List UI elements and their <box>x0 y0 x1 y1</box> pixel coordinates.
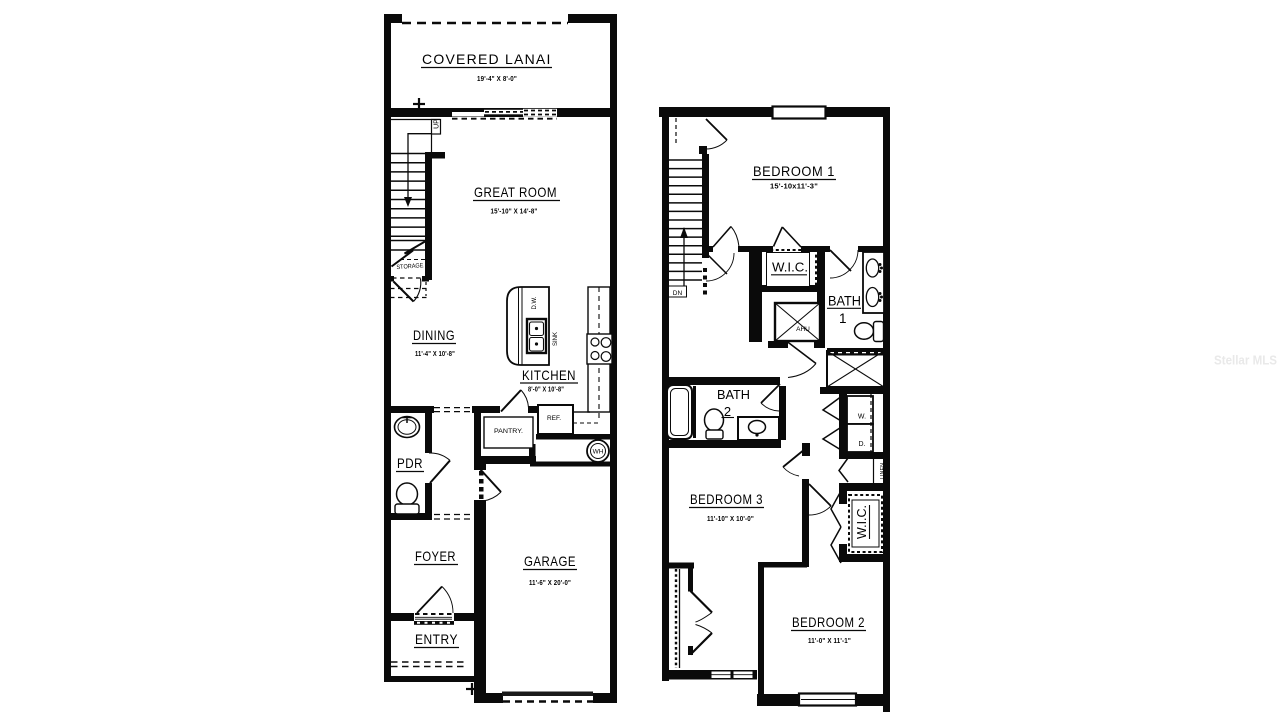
svg-text:KITCHEN: KITCHEN <box>522 367 576 383</box>
svg-text:1: 1 <box>839 311 847 326</box>
svg-text:LINEN: LINEN <box>880 463 886 479</box>
svg-text:8'-0" X 10'-8": 8'-0" X 10'-8" <box>528 385 564 394</box>
svg-text:Stellar MLS: Stellar MLS <box>1214 353 1277 368</box>
svg-text:D.W.: D.W. <box>532 296 538 309</box>
svg-text:AHU: AHU <box>796 326 810 333</box>
svg-text:PANTRY.: PANTRY. <box>494 428 523 435</box>
svg-text:DN: DN <box>673 290 683 297</box>
svg-text:DINING: DINING <box>413 327 455 343</box>
svg-text:UP: UP <box>434 119 441 129</box>
svg-text:11'-4" X 10'-8": 11'-4" X 10'-8" <box>415 349 455 358</box>
svg-text:W.: W. <box>858 414 866 421</box>
svg-text:15'-10" X 14'-8": 15'-10" X 14'-8" <box>491 207 538 216</box>
svg-text:11'-10" X 10'-0": 11'-10" X 10'-0" <box>707 514 754 523</box>
svg-text:GREAT ROOM: GREAT ROOM <box>474 184 557 200</box>
svg-text:GARAGE: GARAGE <box>524 553 576 569</box>
svg-text:19'-4" X 8'-0": 19'-4" X 8'-0" <box>477 74 517 83</box>
svg-text:WH: WH <box>593 449 604 456</box>
svg-text:BEDROOM 1: BEDROOM 1 <box>753 163 835 179</box>
svg-text:COVERED LANAI: COVERED LANAI <box>422 51 551 67</box>
svg-text:FOYER: FOYER <box>415 548 456 564</box>
svg-text:BATH: BATH <box>828 294 861 309</box>
svg-text:D.: D. <box>859 441 866 448</box>
svg-text:15'-10x11'-3": 15'-10x11'-3" <box>770 182 818 191</box>
svg-text:11'-0" X 11'-1": 11'-0" X 11'-1" <box>808 636 851 645</box>
svg-text:W.I.C.: W.I.C. <box>772 260 808 275</box>
svg-text:PDR: PDR <box>397 455 423 471</box>
svg-text:W.I.C.: W.I.C. <box>855 505 869 539</box>
svg-text:2: 2 <box>724 404 731 419</box>
svg-text:SINK: SINK <box>553 332 559 346</box>
svg-text:BEDROOM 2: BEDROOM 2 <box>792 614 865 630</box>
svg-text:11'-6" X 20'-0": 11'-6" X 20'-0" <box>529 578 571 587</box>
svg-text:ENTRY: ENTRY <box>415 631 458 647</box>
svg-text:REF.: REF. <box>547 415 561 422</box>
svg-text:BATH: BATH <box>717 387 750 402</box>
svg-text:BEDROOM 3: BEDROOM 3 <box>690 491 763 507</box>
